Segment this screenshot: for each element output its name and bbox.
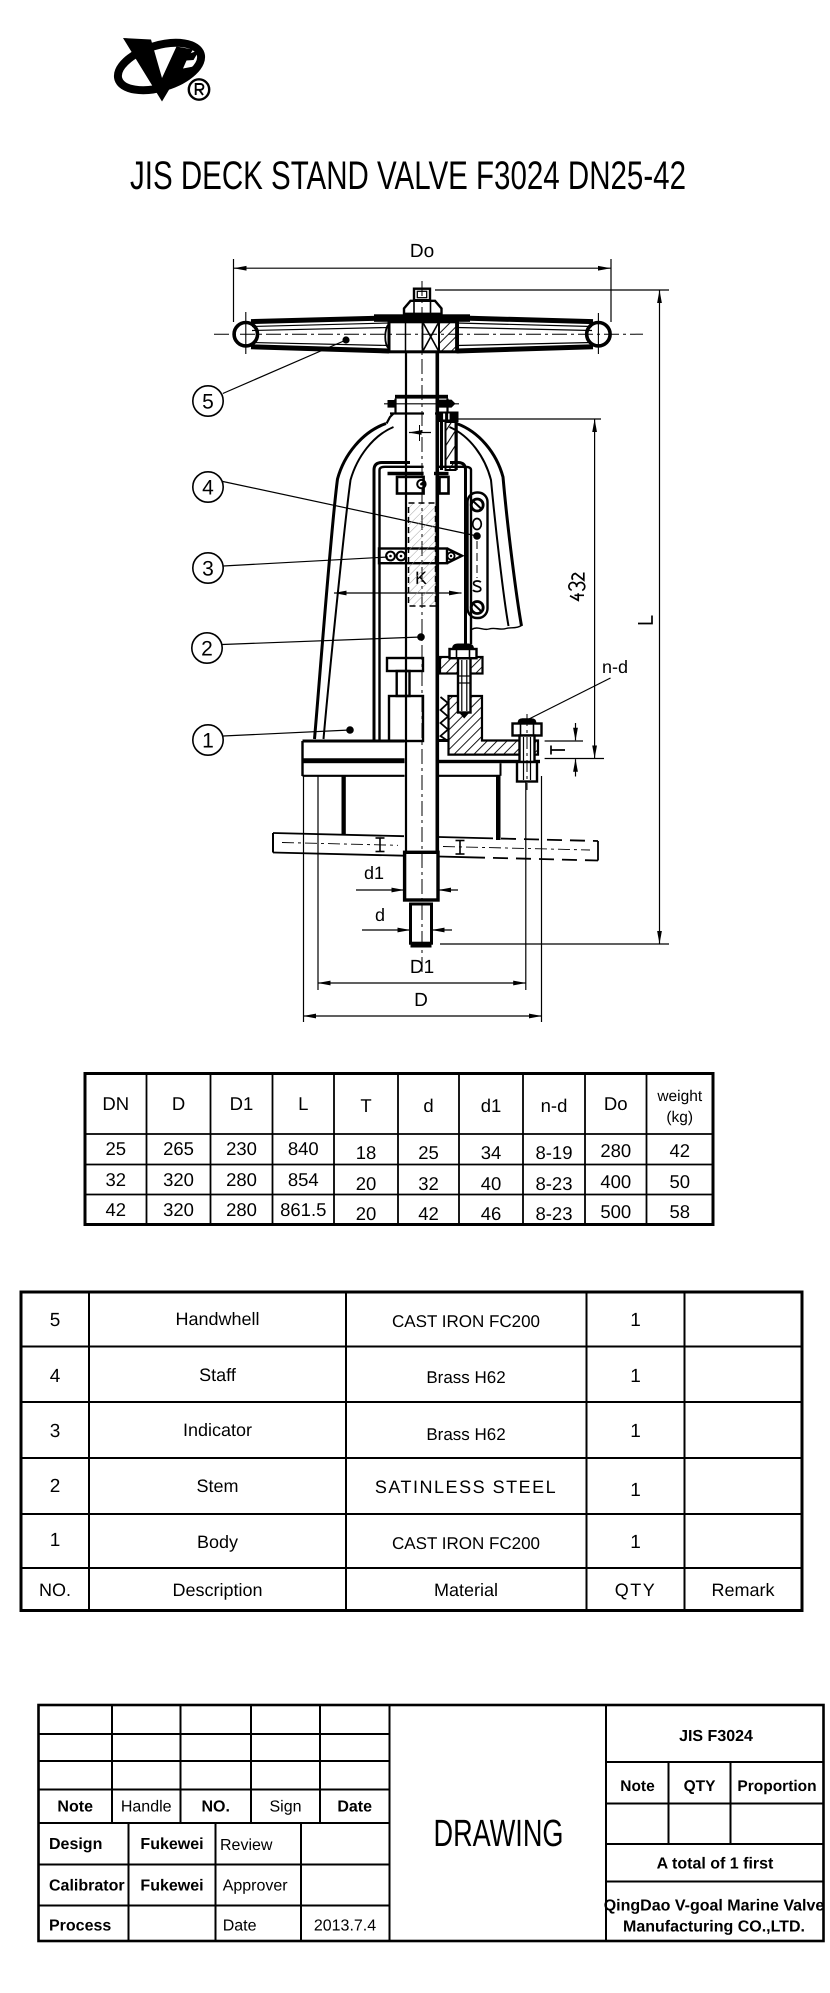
svg-text:34: 34 [481,1142,502,1163]
svg-text:Fukewei: Fukewei [140,1836,203,1853]
svg-text:JIS DECK STAND VALVE F3024 DN2: JIS DECK STAND VALVE F3024 DN25-42 [130,154,686,198]
svg-text:42: 42 [669,1140,690,1161]
svg-text:Stem: Stem [196,1476,238,1496]
svg-text:280: 280 [226,1199,257,1220]
svg-text:D: D [172,1093,185,1114]
svg-text:Fukewei: Fukewei [140,1878,203,1895]
svg-text:CAST IRON FC200: CAST IRON FC200 [392,1312,540,1331]
svg-text:d1: d1 [364,863,384,883]
svg-text:T: T [360,1095,371,1116]
svg-text:2: 2 [50,1476,61,1497]
svg-text:8-19: 8-19 [535,1142,572,1163]
svg-text:1: 1 [630,1532,641,1553]
svg-text:Remark: Remark [711,1580,775,1600]
svg-text:d: d [423,1095,433,1116]
svg-text:CAST IRON FC200: CAST IRON FC200 [392,1534,540,1553]
svg-text:Process: Process [49,1918,111,1935]
svg-text:230: 230 [226,1138,257,1159]
svg-text:Brass H62: Brass H62 [426,1368,505,1387]
svg-text:50: 50 [669,1171,690,1192]
svg-text:25: 25 [105,1138,126,1159]
svg-text:Date: Date [337,1799,372,1816]
svg-text:DN: DN [102,1093,129,1114]
svg-text:42: 42 [418,1203,439,1224]
svg-text:5: 5 [50,1310,61,1331]
svg-text:Handwhell: Handwhell [175,1309,259,1329]
svg-text:854: 854 [288,1169,319,1190]
svg-text:46: 46 [481,1203,502,1224]
svg-text:d: d [375,905,385,925]
svg-text:D1: D1 [230,1093,254,1114]
svg-text:400: 400 [600,1171,631,1192]
svg-text:8-23: 8-23 [535,1173,572,1194]
svg-text:40: 40 [481,1173,502,1194]
svg-text:1: 1 [50,1530,61,1551]
svg-text:Description: Description [172,1580,262,1600]
svg-text:Staff: Staff [199,1365,237,1385]
svg-text:5: 5 [202,391,214,414]
svg-text:20: 20 [356,1173,377,1194]
svg-text:Date: Date [223,1918,257,1935]
svg-text:265: 265 [163,1138,194,1159]
svg-text:500: 500 [600,1201,631,1222]
svg-text:32: 32 [418,1173,439,1194]
svg-text:QTY: QTY [684,1778,717,1795]
svg-text:weight: weight [656,1088,702,1105]
svg-text:D: D [414,990,428,1011]
svg-text:Design: Design [49,1836,102,1853]
svg-text:Calibrator: Calibrator [49,1878,125,1895]
svg-text:Indicator: Indicator [183,1420,252,1440]
svg-text:DRAWING: DRAWING [434,1813,564,1855]
svg-text:18: 18 [356,1142,377,1163]
svg-text:NO.: NO. [201,1799,229,1816]
svg-text:8-23: 8-23 [535,1203,572,1224]
svg-text:20: 20 [356,1203,377,1224]
svg-text:Body: Body [197,1532,238,1552]
svg-text:QingDao V-goal Marine Valve: QingDao V-goal Marine Valve [604,1898,825,1915]
svg-text:Do: Do [410,241,434,262]
svg-text:Note: Note [57,1799,93,1816]
svg-text:d1: d1 [481,1095,502,1116]
svg-text:1: 1 [630,1310,641,1331]
svg-text:3: 3 [202,558,214,581]
svg-text:Handle: Handle [121,1799,172,1816]
svg-text:4: 4 [50,1366,61,1387]
svg-text:L: L [298,1093,308,1114]
svg-text:SATINLESS STEEL: SATINLESS STEEL [375,1477,557,1497]
svg-text:Proportion: Proportion [737,1778,816,1795]
svg-text:2: 2 [201,638,213,661]
svg-text:32: 32 [105,1169,126,1190]
svg-text:1: 1 [630,1366,641,1387]
svg-text:(kg): (kg) [666,1109,693,1126]
svg-text:Material: Material [434,1580,498,1600]
svg-text:1: 1 [630,1421,641,1442]
svg-text:Approver: Approver [223,1878,289,1895]
svg-text:320: 320 [163,1169,194,1190]
svg-text:42: 42 [105,1199,126,1220]
svg-text:A total of 1 first: A total of 1 first [657,1856,774,1873]
svg-text:2013.7.4: 2013.7.4 [314,1918,376,1935]
svg-text:Review: Review [220,1837,273,1854]
svg-text:280: 280 [600,1140,631,1161]
svg-text:Do: Do [604,1093,628,1114]
svg-text:280: 280 [226,1169,257,1190]
svg-text:Manufacturing CO.,LTD.: Manufacturing CO.,LTD. [623,1919,805,1936]
svg-text:840: 840 [288,1138,319,1159]
svg-text:n-d: n-d [602,657,628,677]
svg-text:320: 320 [163,1199,194,1220]
svg-text:3: 3 [50,1421,61,1442]
svg-text:JIS F3024: JIS F3024 [679,1728,753,1745]
svg-text:Sign: Sign [269,1799,301,1816]
svg-text:Brass H62: Brass H62 [426,1425,505,1444]
svg-text:1: 1 [630,1480,641,1501]
svg-text:58: 58 [669,1201,690,1222]
svg-text:Note: Note [620,1778,655,1795]
svg-text:25: 25 [418,1142,439,1163]
svg-text:4: 4 [202,477,214,500]
svg-text:QTY: QTY [615,1580,657,1600]
svg-text:1: 1 [202,730,214,753]
svg-text:n-d: n-d [541,1095,568,1116]
svg-text:NO.: NO. [39,1580,71,1600]
svg-text:861.5: 861.5 [280,1199,326,1220]
